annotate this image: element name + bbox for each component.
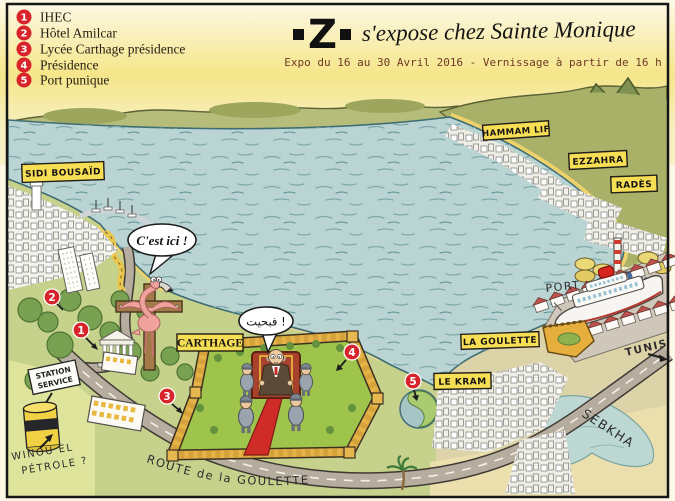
svg-text:3: 3 [163, 391, 170, 403]
legend-item-lycee: 3 Lycée Carthage présidence [17, 42, 186, 57]
z-logo-letter: Z [308, 12, 337, 58]
svg-text:4: 4 [348, 347, 355, 359]
svg-text:1: 1 [21, 13, 28, 24]
bubble-text-cest-ici: C'est ici ! [136, 233, 187, 248]
svg-text:Hôtel Amilcar: Hôtel Amilcar [40, 26, 117, 41]
svg-text:4: 4 [21, 61, 28, 72]
title-script: s'expose chez Sainte Monique [362, 16, 636, 46]
label-rades: RADÈS [611, 175, 658, 193]
label-carthage: CARTHAGE [177, 334, 243, 351]
label-le-kram: LE KRAM [434, 372, 491, 389]
label-sidi-bousaid: SIDI BOUSAÏD [22, 162, 105, 183]
svg-text:3: 3 [21, 45, 28, 56]
legend-item-presidence: 4 Présidence [17, 58, 99, 73]
svg-text:Port punique: Port punique [40, 73, 109, 88]
svg-text:IHEC: IHEC [40, 10, 72, 25]
svg-text:5: 5 [409, 376, 416, 388]
subtitle: Expo du 16 au 30 Avril 2016 - Vernissage… [284, 56, 662, 69]
punic-port [400, 390, 438, 428]
svg-text:1: 1 [77, 325, 84, 337]
legend-item-ihec: 1 IHEC [17, 10, 72, 25]
poster-map: STATION SERVICE [0, 0, 675, 501]
svg-text:Lycée Carthage présidence: Lycée Carthage présidence [40, 42, 185, 57]
svg-text:LE KRAM: LE KRAM [438, 377, 487, 388]
label-la-goulette: LA GOULETTE [461, 332, 539, 350]
svg-text:CARTHAGE: CARTHAGE [177, 338, 243, 350]
label-ezzahra: EZZAHRA [569, 150, 628, 169]
bubble-text-arabic: فبحيت ! [246, 315, 285, 329]
svg-text:Présidence: Présidence [40, 58, 98, 73]
svg-text:2: 2 [21, 29, 28, 40]
svg-text:5: 5 [21, 76, 28, 87]
svg-text:2: 2 [48, 292, 55, 304]
map-illustration: STATION SERVICE [0, 0, 675, 501]
chimney [614, 238, 621, 272]
